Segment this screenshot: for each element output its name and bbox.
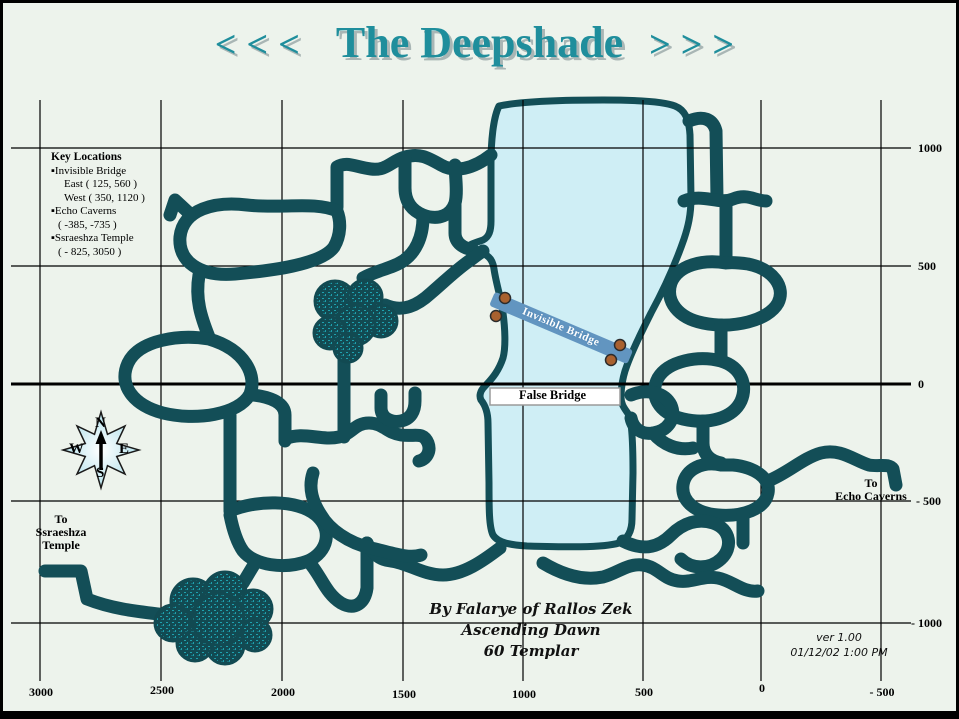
title-right-chevrons: >>> bbox=[649, 23, 744, 67]
axis-label-right: - 1000 bbox=[911, 616, 957, 631]
axis-label-bottom: - 500 bbox=[856, 685, 908, 700]
tunnels bbox=[45, 118, 896, 615]
axis-label-bottom: 2000 bbox=[257, 685, 309, 700]
axis-label-bottom: 3000 bbox=[15, 685, 67, 700]
key-location-line: West ( 350, 1120 ) bbox=[51, 192, 166, 206]
key-location-line: ( - 825, 3050 ) bbox=[51, 246, 166, 260]
cavern-blob-small bbox=[314, 280, 397, 362]
axis-label-bottom: 2500 bbox=[136, 683, 188, 698]
axis-label-bottom: 500 bbox=[618, 685, 670, 700]
key-location-line: East ( 125, 560 ) bbox=[51, 178, 166, 192]
to-ssraeshza-label: To Ssraeshza Temple bbox=[21, 513, 101, 552]
credits-guild: Ascending Dawn bbox=[361, 620, 701, 641]
credits-class: 60 Templar bbox=[361, 641, 701, 662]
lake bbox=[467, 100, 691, 547]
title-text: The Deepshade bbox=[336, 17, 623, 68]
key-location-line: ▪Invisible Bridge bbox=[51, 165, 166, 179]
axis-label-bottom: 0 bbox=[736, 681, 788, 696]
cavern-blob-large bbox=[155, 572, 272, 664]
title-left-chevrons: <<< bbox=[215, 23, 310, 67]
key-location-line: ▪Ssraeshza Temple bbox=[51, 232, 166, 246]
compass-w: W bbox=[69, 441, 84, 458]
key-locations-panel: Key Locations ▪Invisible Bridge East ( 1… bbox=[51, 151, 166, 259]
compass-n: N bbox=[95, 415, 106, 432]
version-box: ver 1.00 01/12/02 1:00 PM bbox=[781, 630, 897, 660]
axis-label-right: - 500 bbox=[916, 494, 959, 509]
version-number: ver 1.00 bbox=[781, 630, 897, 645]
axis-label-bottom: 1500 bbox=[378, 687, 430, 702]
credits: By Falarye of Rallos Zek Ascending Dawn … bbox=[361, 599, 701, 662]
to-echo-caverns-label: To Echo Caverns bbox=[821, 477, 921, 503]
page-title: <<< The Deepshade >>> bbox=[3, 17, 956, 68]
map-page: <<< The Deepshade >>> Key Locations ▪Inv… bbox=[0, 0, 959, 719]
credits-author: By Falarye of Rallos Zek bbox=[361, 599, 701, 620]
key-location-line: ▪Echo Caverns bbox=[51, 205, 166, 219]
key-locations-title: Key Locations bbox=[51, 151, 166, 165]
axis-label-right: 1000 bbox=[918, 141, 959, 156]
compass-s: S bbox=[96, 465, 104, 482]
axis-label-bottom: 1000 bbox=[498, 687, 550, 702]
axis-label-right: 500 bbox=[918, 259, 959, 274]
key-location-line: ( -385, -735 ) bbox=[51, 219, 166, 233]
version-date: 01/12/02 1:00 PM bbox=[781, 645, 897, 660]
false-bridge-label: False Bridge bbox=[519, 389, 586, 402]
compass-e: E bbox=[119, 441, 129, 458]
axis-label-right: 0 bbox=[918, 377, 959, 392]
